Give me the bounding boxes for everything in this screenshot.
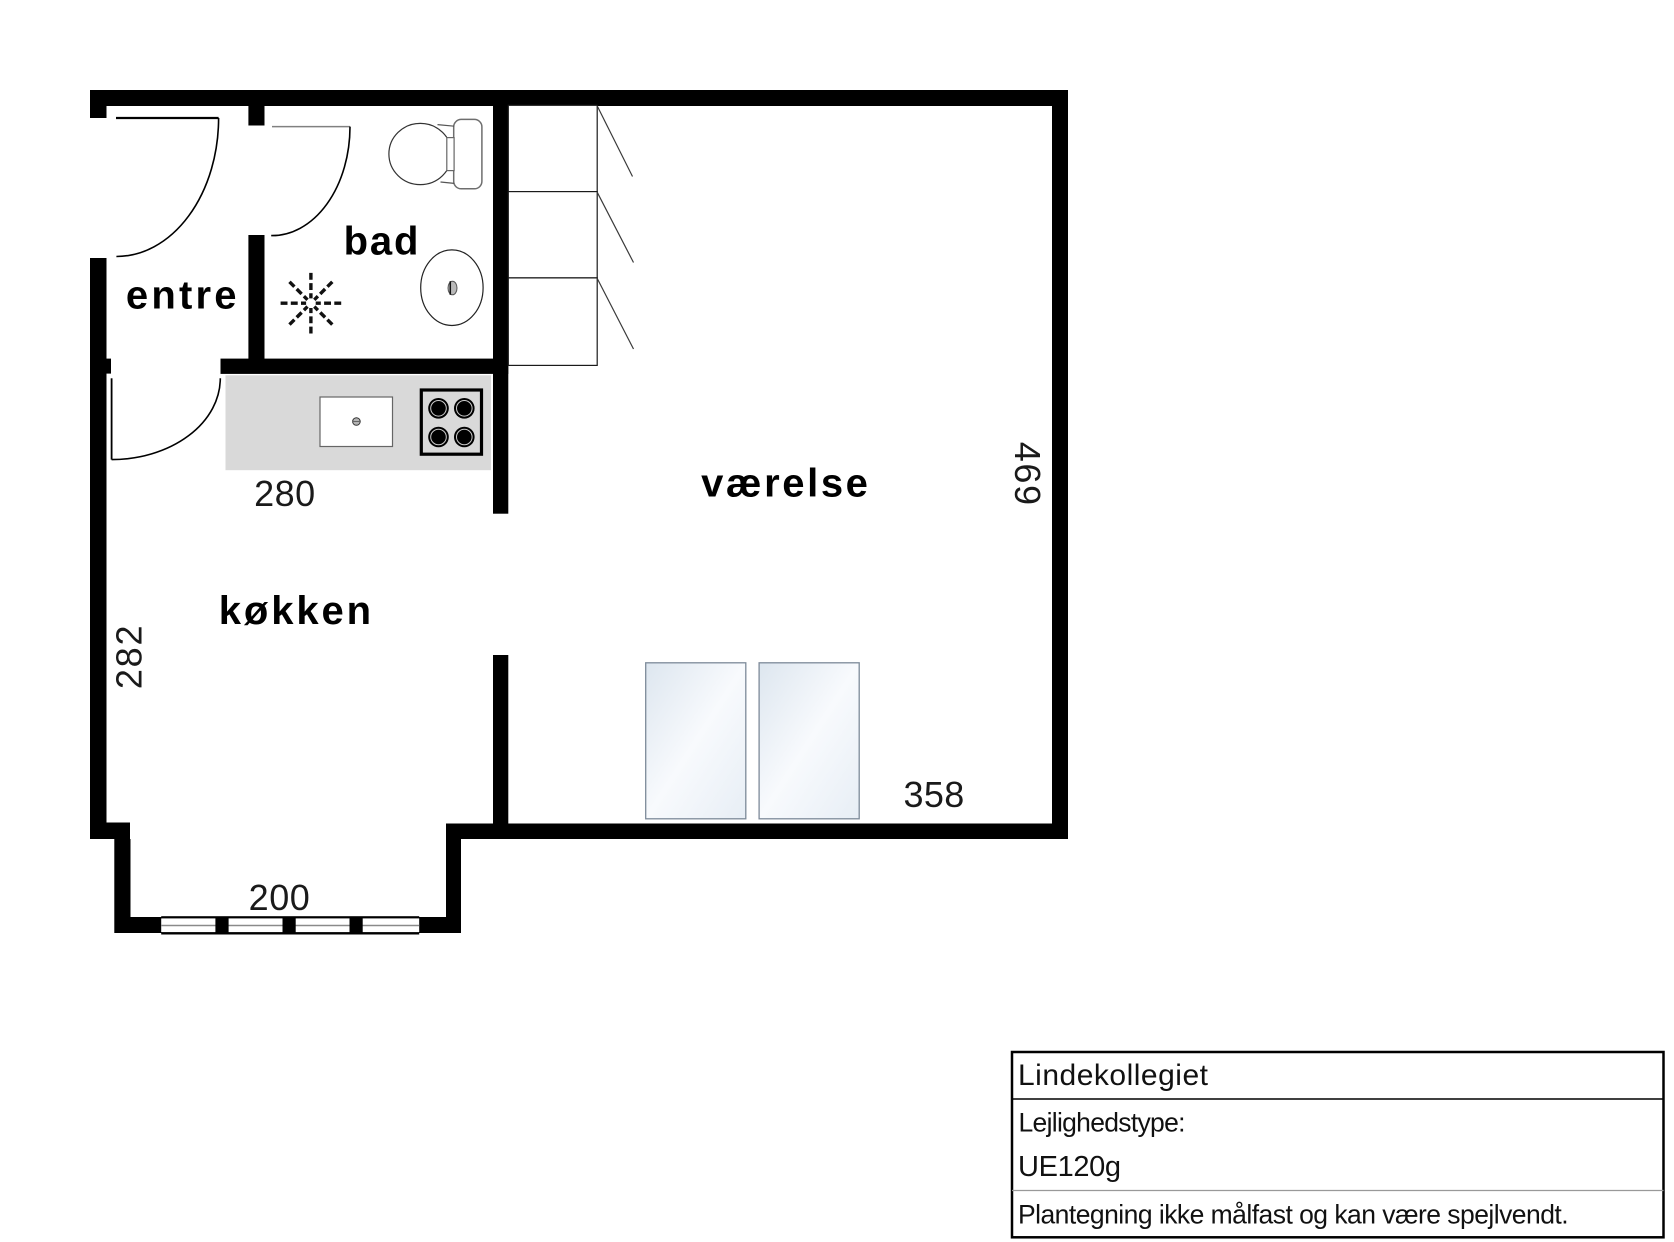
svg-text:Plantegning ikke målfast og ka: Plantegning ikke målfast og kan være spe…	[1018, 1199, 1568, 1229]
svg-text:469: 469	[1007, 442, 1048, 507]
svg-text:køkken: køkken	[219, 589, 374, 633]
svg-text:Lindekollegiet: Lindekollegiet	[1018, 1059, 1209, 1092]
svg-text:Lejlighedstype:: Lejlighedstype:	[1019, 1107, 1185, 1137]
svg-text:200: 200	[249, 877, 311, 918]
svg-text:358: 358	[903, 774, 964, 815]
svg-text:282: 282	[109, 624, 150, 689]
svg-text:bad: bad	[344, 220, 421, 264]
svg-text:280: 280	[254, 473, 316, 514]
svg-text:værelse: værelse	[701, 462, 870, 506]
svg-text:entre: entre	[126, 274, 240, 318]
svg-text:UE120g: UE120g	[1018, 1151, 1121, 1183]
